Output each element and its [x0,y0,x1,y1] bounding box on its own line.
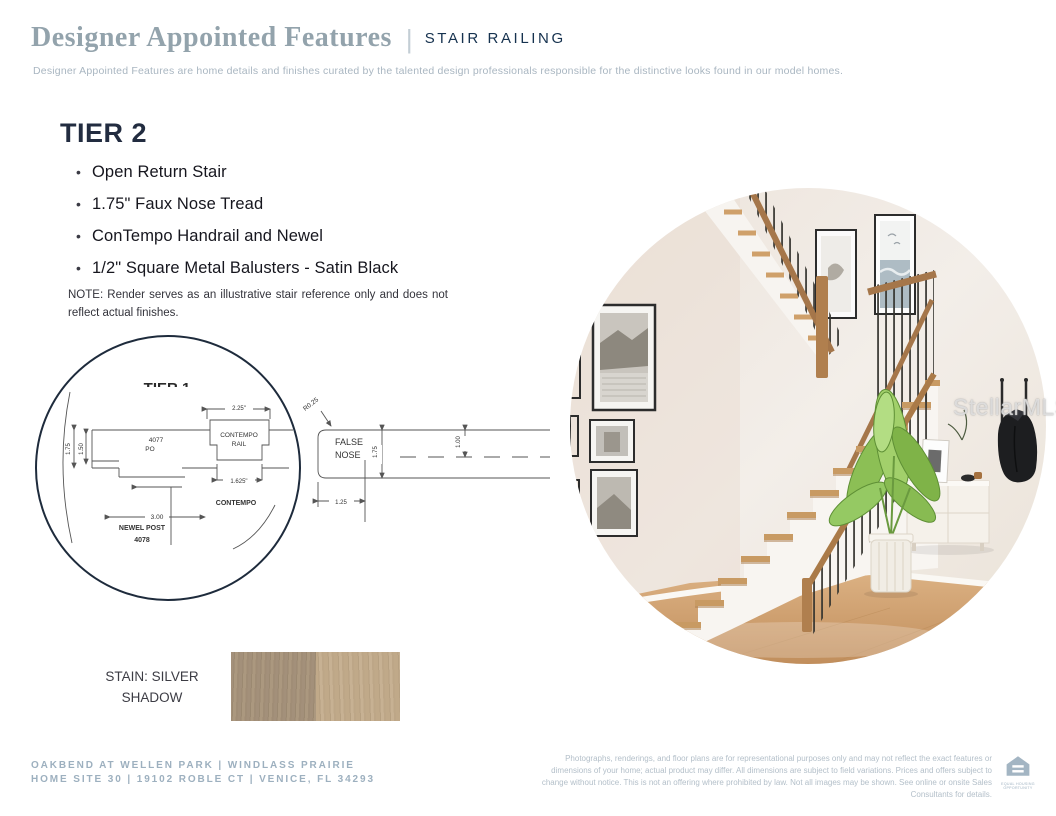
newel-caption-2: 4078 [134,537,150,544]
stain-label: STAIN: SILVER SHADOW [96,667,208,709]
stair-photo [570,188,1046,664]
nose-radius-label: R0.25 [302,396,320,412]
bullet-icon: • [76,196,81,212]
tier-heading: TIER 2 [60,118,147,149]
note-text: NOTE: Render serves as an illustrative s… [68,287,448,323]
equal-housing-logo: EQUAL HOUSING OPPORTUNITY [1001,755,1035,790]
page-header: Designer Appointed Features|STAIR RAILIN… [31,22,566,55]
bottom-newel-post [802,578,812,632]
swatch-right-wood [316,652,401,721]
page-title: Designer Appointed Features [31,22,392,54]
newel-rail-drawing: TIER 1 1.75 1.50 4077 PO 3.00 NEWEL POST… [37,337,298,598]
newel-caption-1: NEWEL POST [119,525,166,532]
feature-list: •Open Return Stair •1.75" Faux Nose Trea… [76,163,398,291]
community-line-2: HOME SITE 30 | 19102 ROBLE CT | VENICE, … [31,773,375,787]
swatch-left-wood [231,652,316,721]
technical-diagram-circle: TIER 1 1.75 1.50 4077 PO 3.00 NEWEL POST… [35,335,301,601]
dim-1-625: 1.625" [230,479,247,485]
nose-label-2: NOSE [335,450,361,460]
community-line-1: OAKBEND AT WELLEN PARK | WINDLASS PRAIRI… [31,759,375,773]
feature-item: •1.75" Faux Nose Tread [76,195,398,214]
dim-1-50: 1.50 [79,443,85,455]
page-category: STAIR RAILING [425,30,566,47]
feature-item: •1/2" Square Metal Balusters - Satin Bla… [76,259,398,278]
rail-caption: CONTEMPO [216,500,257,507]
dim-1-75: 1.75 [66,443,72,455]
page-subtitle: Designer Appointed Features are home det… [33,65,843,77]
dim-3-00: 3.00 [151,514,164,521]
rail-label-2: RAIL [232,441,247,448]
nose-dim-center: 1.00 [456,436,462,448]
title-divider: | [406,24,413,55]
stellar-mls-watermark: StellarMLS [953,394,1056,421]
equal-housing-house-icon [1005,755,1031,777]
stain-swatch [231,652,400,721]
community-address: OAKBEND AT WELLEN PARK | WINDLASS PRAIRI… [31,759,375,787]
designer-features-page: Designer Appointed Features|STAIR RAILIN… [0,0,1056,816]
dim-2-25: 2.25" [232,406,246,412]
bullet-icon: • [76,228,81,244]
legal-disclaimer: Photographs, renderings, and floor plans… [530,753,992,801]
eho-text-line-2: OPPORTUNITY [1001,786,1035,790]
nose-dim-depth: 1.25 [335,500,347,506]
nose-dim-height: 1.75 [373,446,379,458]
mid-newel-post [816,276,828,378]
rail-label-1: CONTEMPO [220,432,258,439]
feature-item: •Open Return Stair [76,163,398,182]
stair-photo-render [570,188,1046,664]
newel-part-suffix: PO [145,446,154,453]
feature-item: •ConTempo Handrail and Newel [76,227,398,246]
false-nose-drawing: R0.25 FALSE NOSE 1.75 1.00 1.25 [295,385,550,525]
newel-part-no: 4077 [149,437,164,444]
bullet-icon: • [76,164,81,180]
nose-label-1: FALSE [335,437,363,447]
bullet-icon: • [76,260,81,276]
